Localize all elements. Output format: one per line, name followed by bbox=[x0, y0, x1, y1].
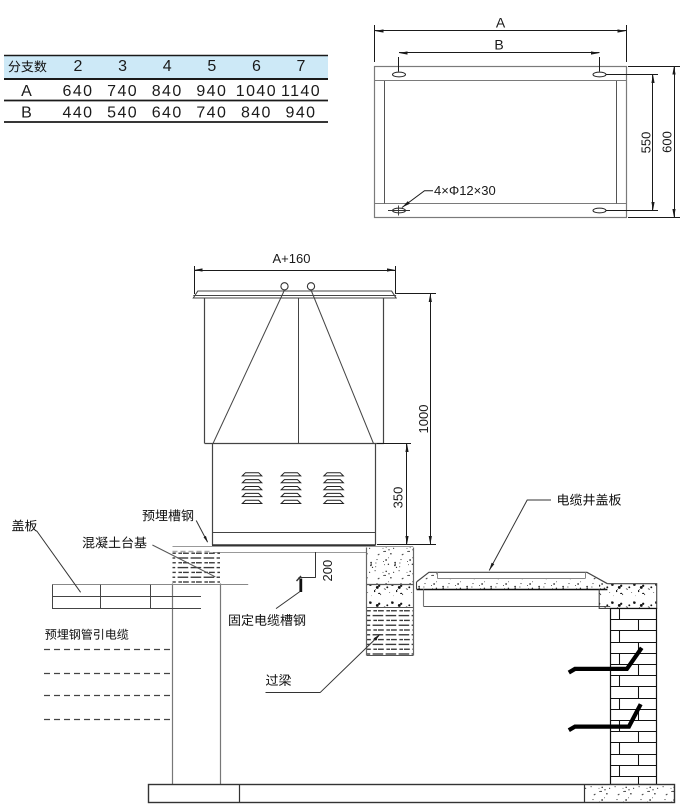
svg-text:640: 640 bbox=[152, 104, 183, 121]
svg-text:540: 540 bbox=[107, 104, 138, 121]
svg-text:4: 4 bbox=[163, 58, 172, 75]
svg-text:940: 940 bbox=[286, 104, 317, 121]
svg-text:B: B bbox=[21, 104, 32, 121]
svg-text:840: 840 bbox=[152, 83, 183, 100]
svg-text:600: 600 bbox=[660, 131, 675, 153]
svg-text:440: 440 bbox=[63, 104, 94, 121]
svg-text:5: 5 bbox=[207, 58, 216, 75]
svg-text:1000: 1000 bbox=[416, 405, 431, 434]
svg-text:640: 640 bbox=[63, 83, 94, 100]
svg-text:6: 6 bbox=[252, 58, 261, 75]
svg-text:7: 7 bbox=[297, 58, 306, 75]
svg-text:840: 840 bbox=[241, 104, 272, 121]
svg-text:A+160: A+160 bbox=[273, 251, 311, 266]
svg-text:550: 550 bbox=[639, 132, 654, 154]
svg-text:A: A bbox=[496, 15, 506, 31]
svg-text:940: 940 bbox=[196, 83, 227, 100]
svg-text:B: B bbox=[494, 37, 503, 53]
svg-text:3: 3 bbox=[118, 58, 127, 75]
svg-text:4×Φ12×30: 4×Φ12×30 bbox=[434, 183, 496, 198]
svg-text:1040: 1040 bbox=[236, 83, 277, 100]
svg-text:200: 200 bbox=[320, 560, 335, 582]
svg-text:740: 740 bbox=[196, 104, 227, 121]
svg-text:740: 740 bbox=[107, 83, 138, 100]
svg-text:350: 350 bbox=[391, 487, 406, 509]
svg-text:A: A bbox=[21, 83, 32, 100]
svg-text:2: 2 bbox=[74, 58, 83, 75]
svg-text:1140: 1140 bbox=[281, 83, 321, 100]
